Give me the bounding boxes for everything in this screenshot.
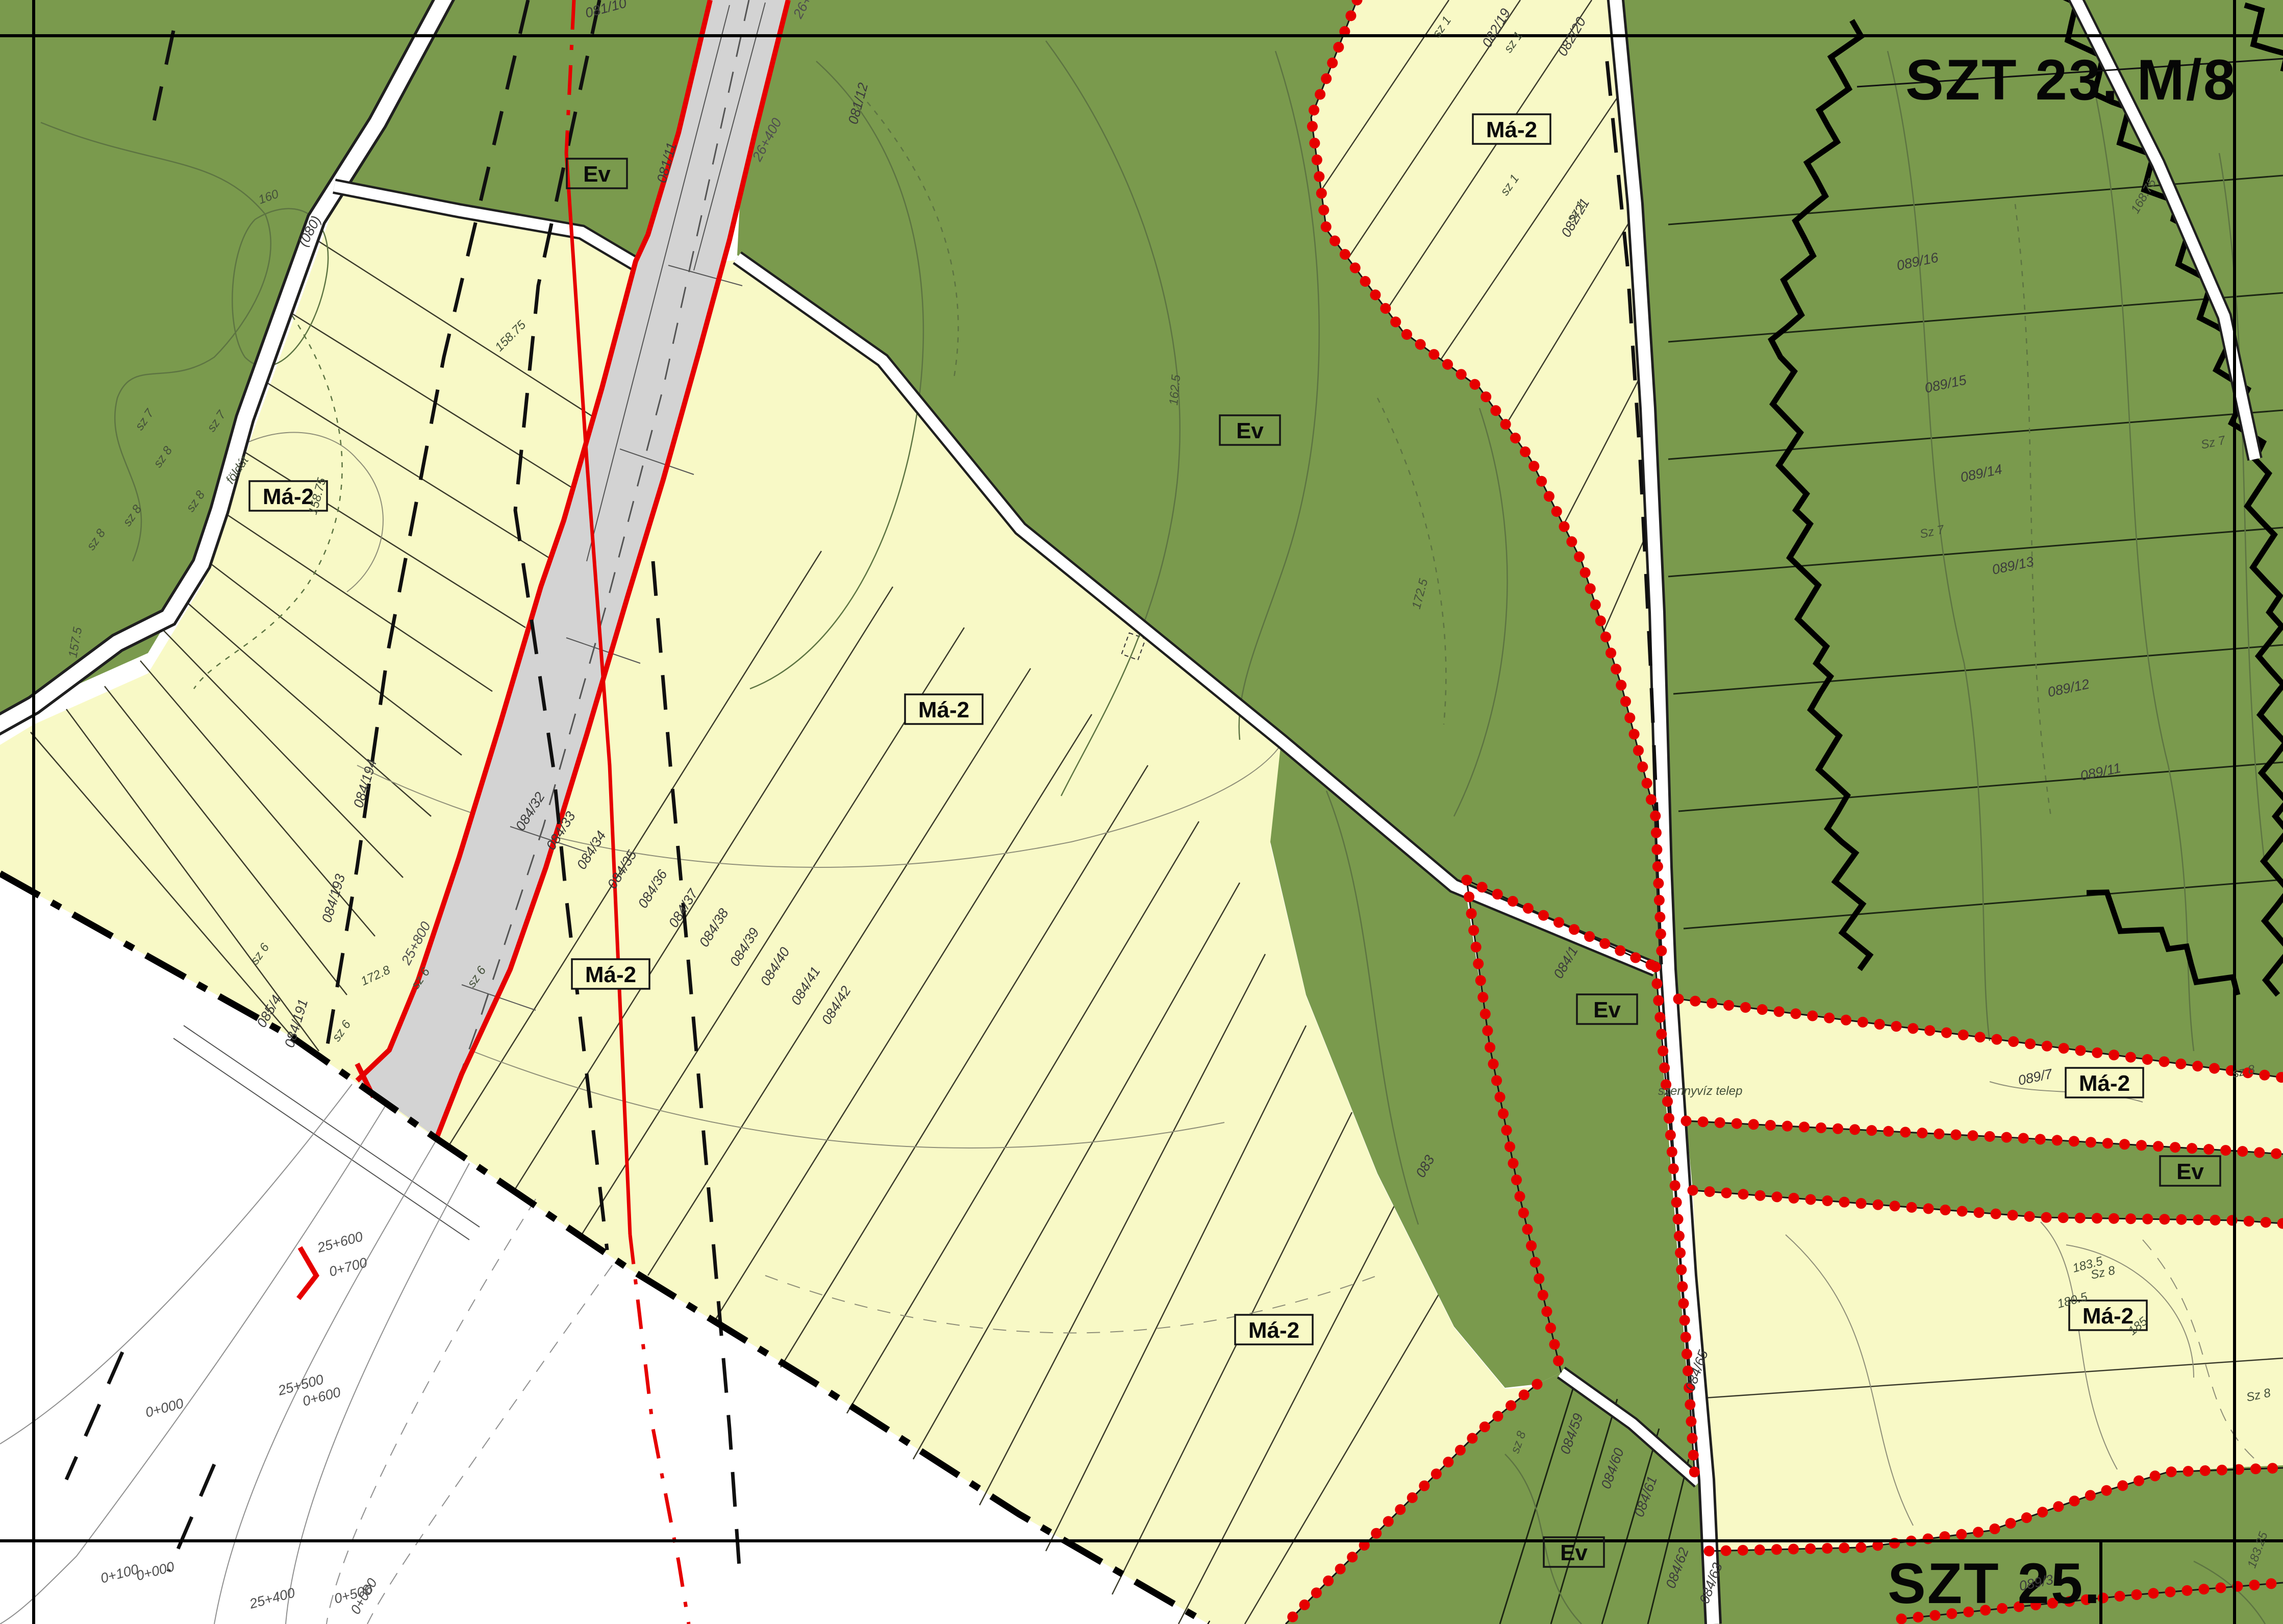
zone-label-text: Má-2: [2079, 1071, 2130, 1096]
zone-label-text: Má-2: [2083, 1304, 2134, 1329]
zoning-map-canvas: SZT 23. M/8 SZT 25. EvEvEvEvEvMá-2Má-2Má…: [0, 0, 2283, 1624]
zone-label-text: Ev: [1560, 1540, 1588, 1565]
zone-label-m2: Má-2: [572, 959, 649, 989]
zone-label-text: Má-2: [1248, 1318, 1299, 1343]
sheet-title-top-right: SZT 23. M/8: [1905, 48, 2237, 112]
zone-label-m2: Má-2: [2066, 1068, 2143, 1097]
zone-label-text: Ev: [1593, 997, 1621, 1022]
zone-label-text: Ev: [2176, 1159, 2204, 1184]
zone-label-m2: Má-2: [1235, 1315, 1313, 1344]
zone-label-m2: Má-2: [905, 694, 983, 724]
zone-label-text: Má-2: [263, 484, 314, 509]
annotation-label: szennyvíz telep: [1658, 1084, 1742, 1098]
sheet-title-bottom-right: SZT 25.: [1888, 1552, 2101, 1615]
green-right-large: [1615, 0, 2283, 1078]
zone-label-text: Má-2: [585, 962, 636, 987]
zone-label-text: Má-2: [918, 697, 969, 722]
zone-label-text: Má-2: [1486, 117, 1537, 142]
zone-label-text: Ev: [583, 162, 611, 187]
zone-label-text: Ev: [1236, 418, 1264, 443]
zone-label-m2: Má-2: [1473, 114, 1550, 144]
annotation-label: 162.5: [1167, 374, 1183, 406]
